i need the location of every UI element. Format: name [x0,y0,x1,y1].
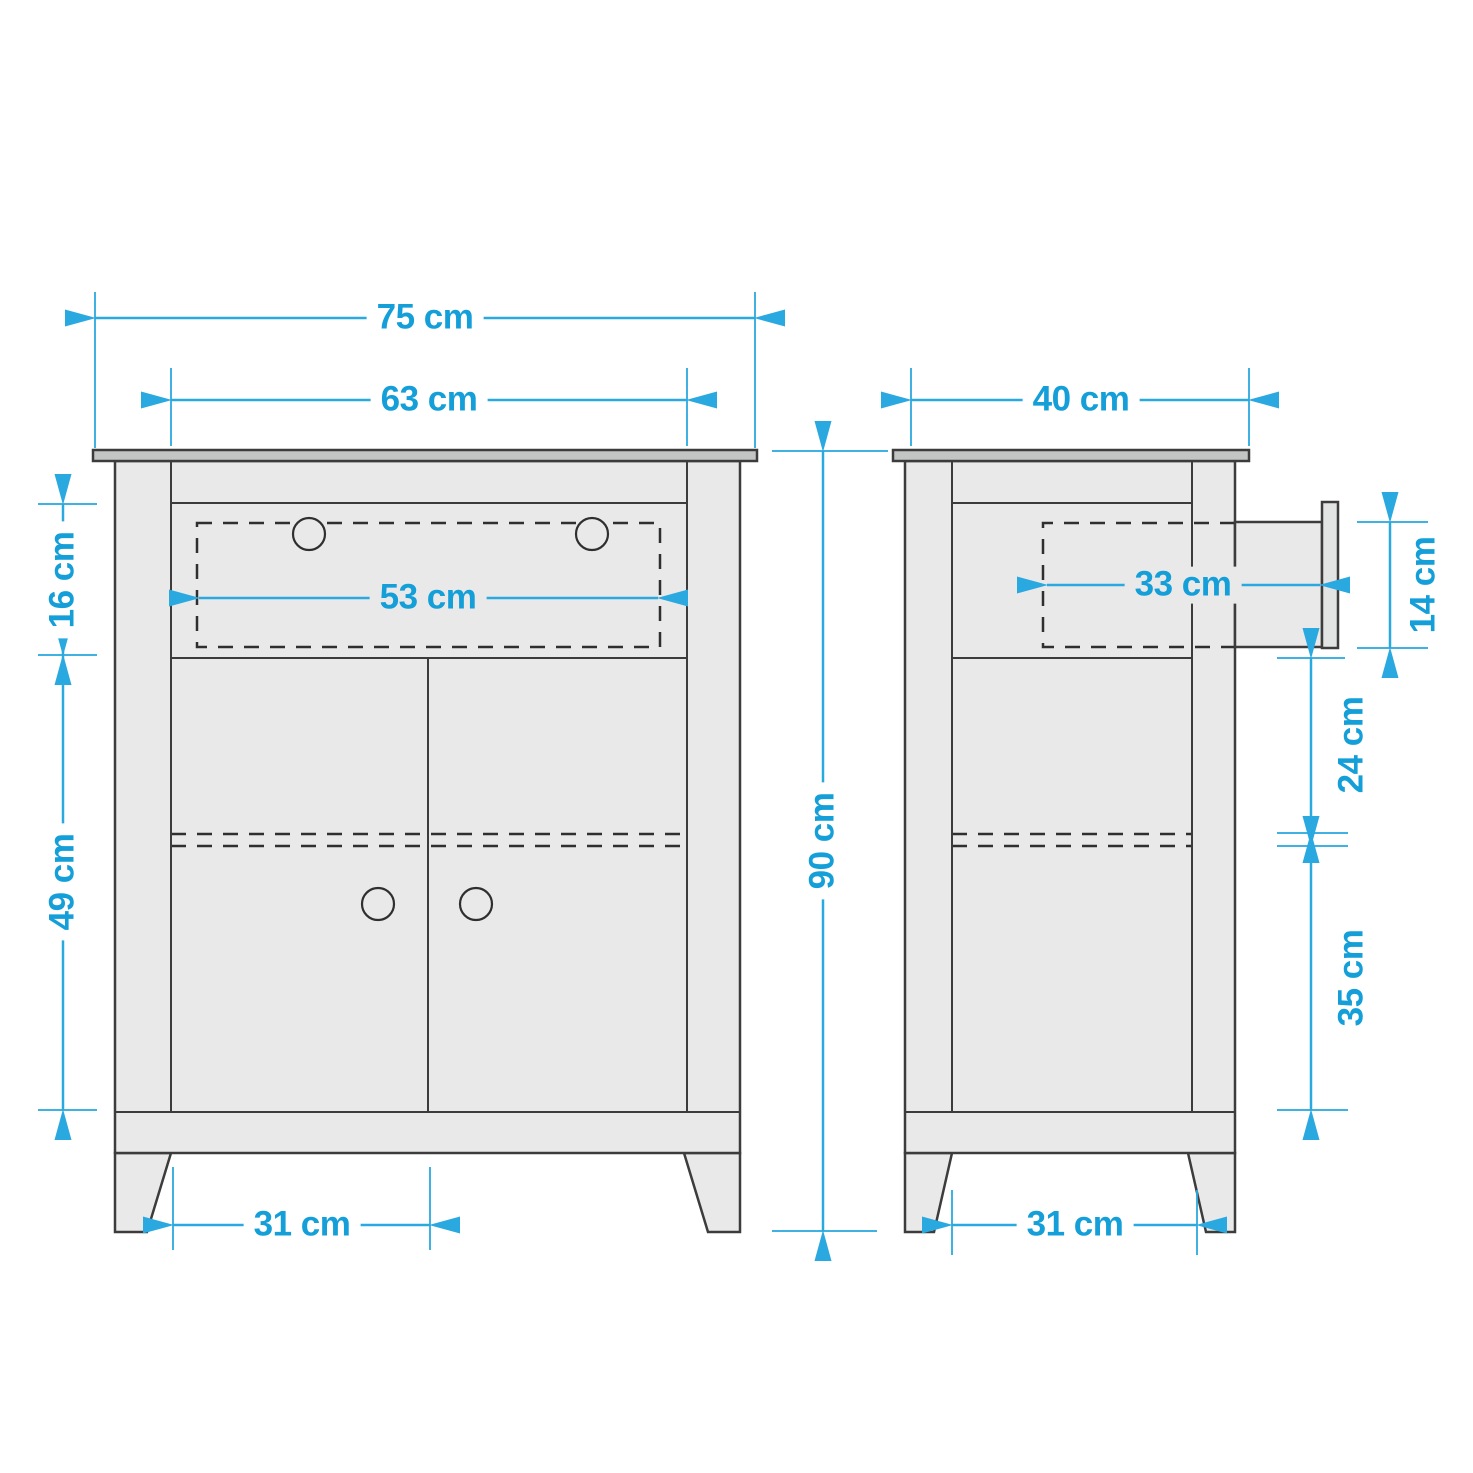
drawing-canvas [0,0,1473,1473]
drawer-knob-left [293,518,325,550]
dim-label-top-width: 75 cm [367,300,484,337]
dim-label-total-height: 90 cm [805,783,842,900]
dim-label-front-leg-span: 31 cm [244,1207,361,1244]
front-left-leg [115,1153,171,1232]
dim-label-side-depth: 40 cm [1023,382,1140,419]
front-right-leg [684,1153,740,1232]
side-top-board [893,450,1249,461]
drawer-knob-right [576,518,608,550]
dim-label-inner-width: 63 cm [371,382,488,419]
door-knob-right [460,888,492,920]
side-right-leg [1188,1153,1235,1232]
dim-label-side-leg-span: 31 cm [1017,1207,1134,1244]
dim-label-upper-compartment: 24 cm [1334,687,1371,804]
dim-label-lower-compartment: 35 cm [1334,920,1371,1037]
side-left-leg [905,1153,952,1232]
dim-label-door-height: 49 cm [45,824,82,941]
dim-label-drawer-height: 16 cm [45,522,82,639]
pulled-out-drawer-front [1322,502,1338,648]
dim-label-drawer-width: 53 cm [370,580,487,617]
dim-label-drawer-depth: 33 cm [1125,567,1242,604]
side-view [893,450,1338,1232]
door-knob-left [362,888,394,920]
front-top-board [93,450,757,461]
front-view [93,450,757,1232]
dimension-diagram: 75 cm 63 cm 40 cm 16 cm 53 cm 49 cm 90 c… [0,0,1473,1473]
dim-label-drawer-side-height: 14 cm [1406,527,1443,644]
